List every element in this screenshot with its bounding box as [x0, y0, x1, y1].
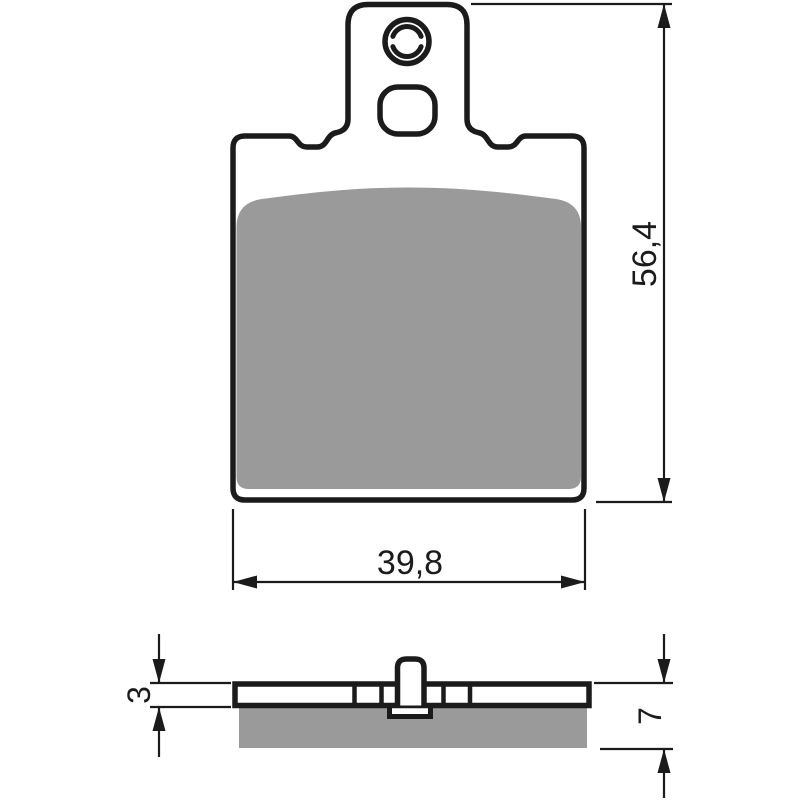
side-view [235, 659, 589, 748]
arrowhead-down-icon [658, 659, 671, 683]
width-dimension-label: 39,8 [377, 544, 443, 582]
drawing-canvas: 56,4 39,8 [0, 0, 800, 800]
arrowhead-down-icon [658, 478, 671, 502]
plate-thickness-label: 3 [121, 686, 157, 704]
friction-pad-front [237, 188, 582, 490]
arrowhead-down-icon [153, 659, 166, 683]
arrowhead-up-icon [658, 4, 671, 28]
arrowhead-right-icon [561, 576, 585, 589]
total-thickness-label: 7 [632, 707, 668, 725]
dimension-width: 39,8 [233, 509, 585, 590]
arrowhead-up-icon [153, 707, 166, 731]
arrowhead-up-icon [658, 749, 671, 773]
side-tab [398, 659, 425, 706]
arrowhead-left-icon [233, 576, 257, 589]
front-view [233, 5, 584, 501]
dimension-total-thickness: 7 [594, 634, 673, 798]
height-dimension-label: 56,4 [626, 221, 664, 287]
technical-drawing: 56,4 39,8 [0, 0, 800, 800]
dimension-plate-thickness: 3 [121, 634, 231, 757]
